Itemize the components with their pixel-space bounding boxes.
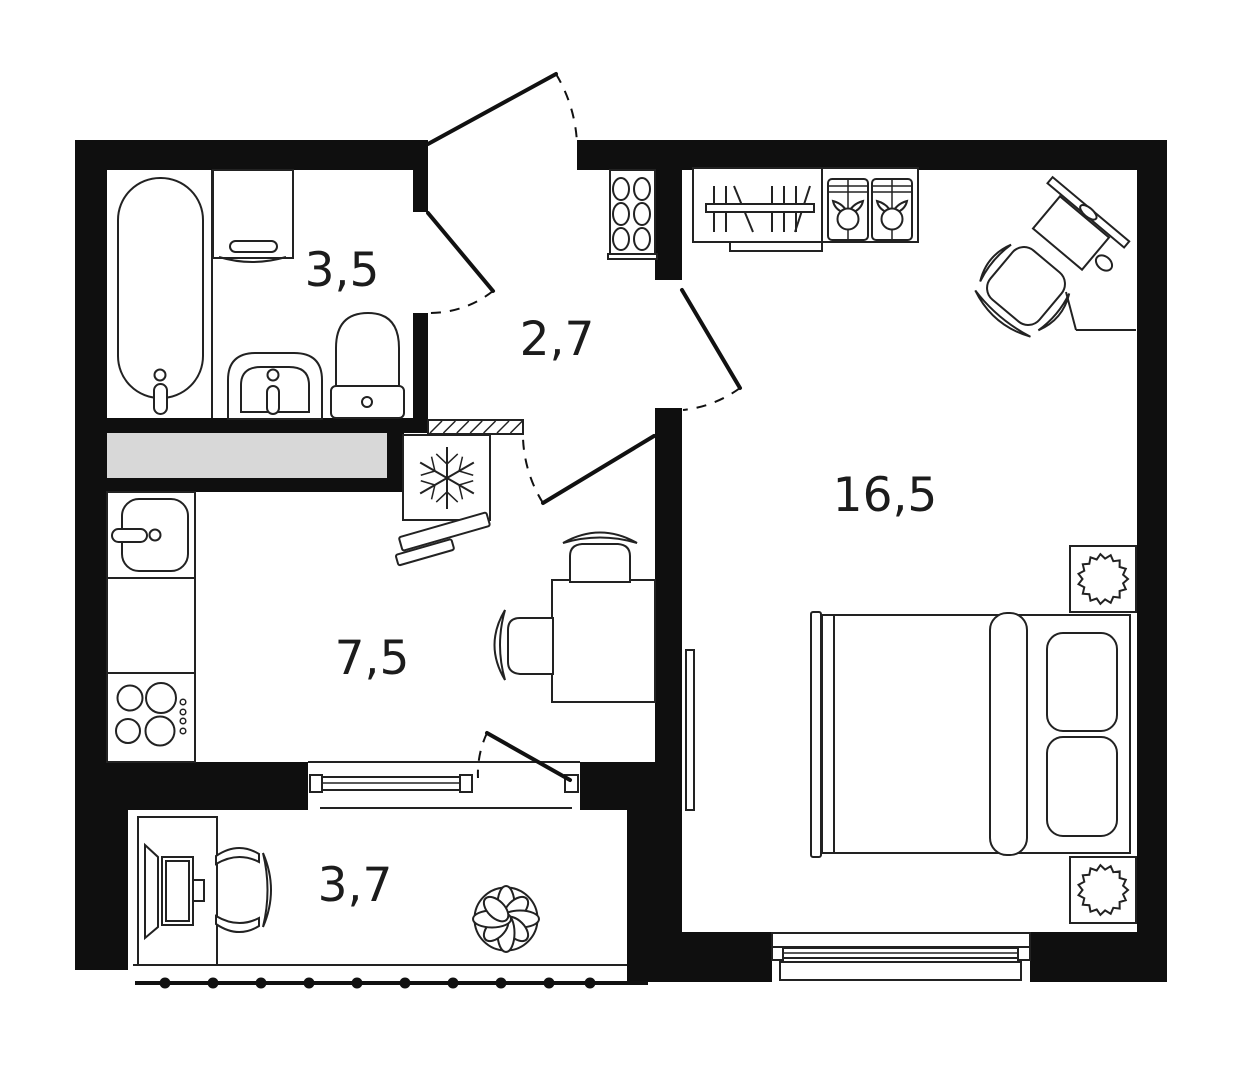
mouse-icon [1093, 252, 1115, 274]
wall-bedroom-left-upper [655, 170, 682, 280]
fridge-icon [391, 435, 494, 566]
wall-right [1137, 168, 1167, 982]
wall-bathroom-right-lower [413, 313, 428, 418]
wall-top-left [75, 140, 428, 170]
balcony-chair-icon [216, 848, 271, 932]
room-label-living-room: 16,5 [833, 468, 938, 523]
kitchen-door [523, 436, 654, 503]
pillow-icon [1047, 633, 1117, 731]
wall-duct-side [387, 418, 404, 492]
clothes-rail [706, 204, 814, 212]
plant-icon [473, 886, 539, 952]
storage-box-icon [828, 179, 868, 240]
wall-bottom-bedroom-right [1030, 932, 1167, 982]
kitchen-window [308, 762, 580, 808]
wall-left [75, 168, 107, 762]
wardrobe-icon [693, 168, 918, 251]
radiator-icon [686, 650, 694, 810]
kitchen-chair-top [563, 533, 637, 583]
wall-balcony-right [627, 808, 682, 982]
bedroom-window [772, 933, 1030, 980]
floor-plan: 3,5 2,7 7,5 16,5 3,7 [0, 0, 1257, 1080]
kitchen-chair-left [495, 610, 554, 680]
toilet-icon [331, 313, 404, 418]
wardrobe-door-rail [730, 242, 822, 251]
duct-shaft-icon [107, 433, 387, 478]
bed-footboard [811, 612, 821, 857]
floor-plan-svg: 3,5 2,7 7,5 16,5 3,7 [0, 0, 1257, 1080]
nightstand-top [1070, 546, 1136, 612]
computer-icon [145, 845, 158, 938]
kitchen-sink-icon [112, 499, 188, 571]
entrance-door [428, 74, 577, 144]
bedroom-furniture [686, 168, 1136, 923]
dining-table-icon [552, 580, 655, 702]
room-label-kitchen: 7,5 [335, 631, 410, 686]
wall-duct-bottom [107, 478, 415, 492]
nightstand-bottom [1070, 857, 1136, 923]
bed-blanket-roll [990, 613, 1027, 855]
vent-hatch-icon [428, 420, 523, 434]
railing-icon [133, 965, 648, 989]
shoe-rack-icon [608, 170, 657, 259]
bathroom-sink-icon [228, 353, 322, 419]
double-bed-icon [811, 612, 1130, 857]
balcony-desk-icon [138, 817, 217, 965]
washing-machine-icon [213, 170, 293, 262]
wall-bathroom-bottom [107, 418, 428, 433]
room-label-bathroom: 3,5 [305, 243, 380, 298]
storage-box-icon-2 [872, 179, 912, 240]
bathtub-icon [118, 178, 203, 414]
wall-kitchen-bedroom [655, 408, 682, 808]
wall-top-right [577, 140, 1167, 170]
wall-bathroom-right-upper [413, 170, 428, 212]
room-label-hallway: 2,7 [520, 312, 595, 367]
bedroom-door [682, 290, 740, 410]
bathroom-door [428, 213, 493, 313]
balcony-door [478, 733, 570, 780]
room-label-balcony: 3,7 [318, 858, 393, 913]
pillow-icon-2 [1047, 737, 1117, 836]
wall-kitchen-bottom-left [75, 762, 308, 810]
